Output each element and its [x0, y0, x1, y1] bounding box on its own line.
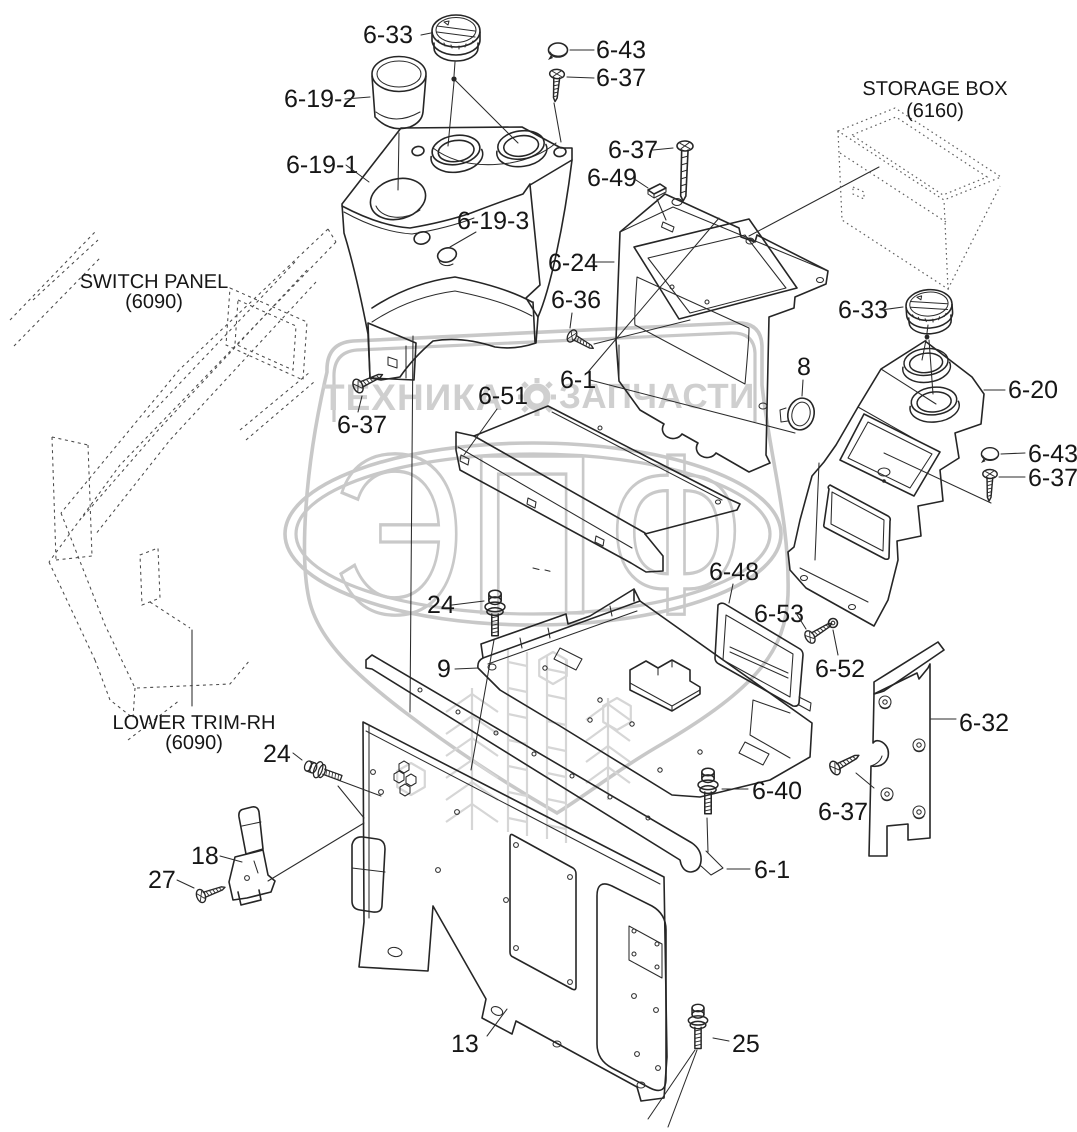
- svg-text:Э: Э: [331, 408, 462, 662]
- svg-text:6-37: 6-37: [337, 411, 387, 439]
- svg-text:9: 9: [437, 655, 451, 683]
- svg-text:(6090): (6090): [165, 732, 223, 754]
- svg-text:LOWER TRIM-RH: LOWER TRIM-RH: [113, 712, 276, 734]
- svg-text:6-40: 6-40: [752, 777, 802, 805]
- svg-text:(6090): (6090): [125, 291, 183, 313]
- svg-text:6-52: 6-52: [815, 655, 865, 683]
- svg-text:6-37: 6-37: [818, 798, 868, 826]
- svg-text:6-43: 6-43: [596, 36, 646, 64]
- svg-text:SWITCH PANEL: SWITCH PANEL: [80, 271, 229, 293]
- svg-text:6-37: 6-37: [596, 64, 646, 92]
- svg-text:13: 13: [451, 1030, 479, 1058]
- svg-text:8: 8: [797, 353, 811, 381]
- svg-text:6-36: 6-36: [551, 286, 601, 314]
- svg-text:(6160): (6160): [906, 100, 964, 122]
- svg-text:24: 24: [263, 740, 291, 768]
- svg-text:6-19-3: 6-19-3: [457, 207, 529, 235]
- svg-text:6-51: 6-51: [478, 382, 528, 410]
- svg-text:6-33: 6-33: [363, 21, 413, 49]
- svg-text:6-24: 6-24: [548, 249, 598, 277]
- svg-text:STORAGE BOX: STORAGE BOX: [862, 78, 1007, 100]
- svg-text:6-32: 6-32: [959, 709, 1009, 737]
- svg-text:24: 24: [427, 591, 455, 619]
- svg-text:6-19-1: 6-19-1: [286, 151, 358, 179]
- svg-text:18: 18: [191, 842, 219, 870]
- svg-text:6-48: 6-48: [709, 558, 759, 586]
- svg-text:6-20: 6-20: [1008, 376, 1058, 404]
- svg-text:6-37: 6-37: [608, 136, 658, 164]
- svg-text:6-37: 6-37: [1028, 464, 1077, 492]
- svg-text:25: 25: [732, 1030, 760, 1058]
- svg-text:27: 27: [148, 866, 176, 894]
- svg-text:6-49: 6-49: [587, 164, 637, 192]
- svg-text:6-1: 6-1: [754, 856, 790, 884]
